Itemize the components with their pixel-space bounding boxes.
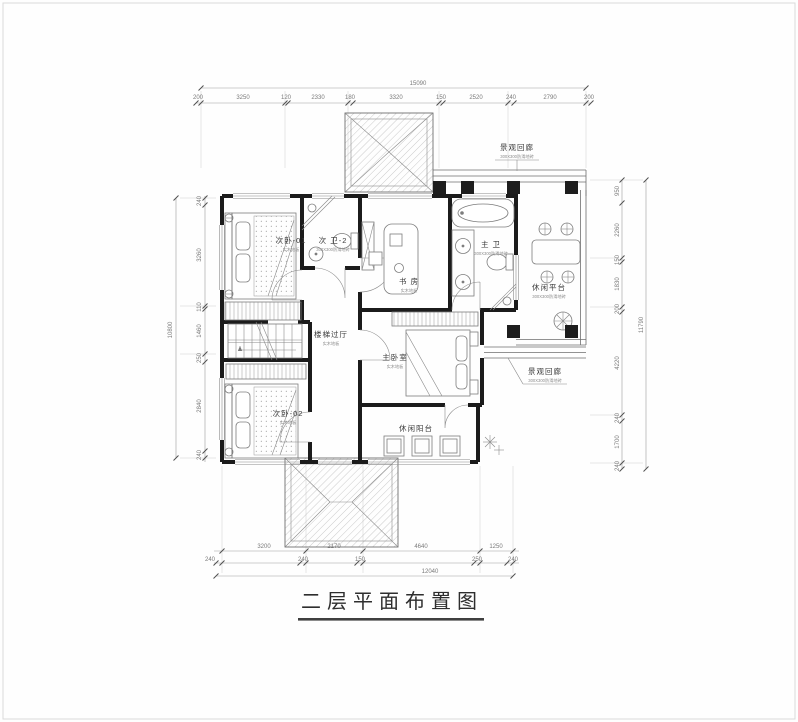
label-corridor-top: 景观回廊 <box>500 142 534 152</box>
dim-left: 10800 240 3260 110 1460 250 2840 240 <box>168 195 208 462</box>
dim: 2790 <box>543 95 557 101</box>
terrace-railing <box>516 190 586 345</box>
floorplan-sheet: 次卧-01 实木地板 次 卫-2 300X300防滑地砖 书 房 实木地板 主 … <box>0 0 798 722</box>
label-bedroom1: 次卧-01 <box>276 235 307 245</box>
sublabel-study: 实木地板 <box>401 287 419 294</box>
dim: 200 <box>615 303 621 314</box>
dim: 240 <box>615 412 621 423</box>
dim: 240 <box>508 557 519 563</box>
label-corridor-right: 景观回廊 <box>528 366 562 376</box>
dim: 110 <box>197 302 203 312</box>
plant-icon <box>483 435 504 455</box>
dim: 250 <box>472 557 483 563</box>
sublabel-masterbath: 300X300防滑地砖 <box>474 250 508 257</box>
dim: 200 <box>584 95 595 101</box>
dim: 2520 <box>469 95 483 101</box>
sublabel-corridor-top: 300X300防滑地砖 <box>500 153 534 160</box>
wardrobe-bedroom1 <box>225 302 301 320</box>
dim: 1830 <box>615 277 621 291</box>
terrace-furniture <box>532 223 580 330</box>
dim: 2330 <box>311 95 325 101</box>
dim: 150 <box>355 557 366 563</box>
dim: 240 <box>506 95 517 101</box>
dim: 1460 <box>197 324 203 338</box>
label-bath2: 次 卫-2 <box>319 235 348 245</box>
sublabel-bedroom1: 实木地板 <box>283 246 301 253</box>
dim: 1700 <box>615 435 621 449</box>
dim: 2840 <box>197 399 203 413</box>
dim: 4220 <box>615 356 621 370</box>
wardrobe-bedroom2 <box>226 364 306 379</box>
dim: 240 <box>615 460 621 471</box>
dim: 200 <box>193 95 204 101</box>
sublabel-terrace: 300X300防滑地砖 <box>532 293 566 300</box>
dim: 2260 <box>615 223 621 237</box>
sublabel-bath2: 300X300防滑地砖 <box>316 246 350 253</box>
label-stairhall: 楼梯过厅 <box>314 329 348 339</box>
title-text: 二层平面布置图 <box>301 590 483 613</box>
dim: 240 <box>298 557 309 563</box>
roof-bottom <box>285 458 398 547</box>
sublabel-masterbedroom: 实木地板 <box>387 363 405 370</box>
dim: 150 <box>615 254 621 265</box>
dim: 3260 <box>197 248 203 262</box>
label-bedroom2: 次卧-02 <box>273 408 304 418</box>
dim: 3250 <box>236 95 250 101</box>
dim-top-overall: 15090 <box>410 81 427 87</box>
title-underline <box>298 618 484 621</box>
label-masterbath: 主 卫 <box>481 239 501 249</box>
dim: 250 <box>197 352 203 363</box>
corridor-right-railing <box>484 347 586 358</box>
label-masterbedroom: 主卧室 <box>382 352 408 362</box>
dim: 240 <box>197 195 203 206</box>
dim: 180 <box>345 95 356 101</box>
balcony-furniture <box>384 435 504 456</box>
label-balcony: 休闲阳台 <box>399 423 433 433</box>
dim-top: 15090 200 3250 120 2330 180 3320 150 252… <box>193 81 595 106</box>
dim: 240 <box>205 557 216 563</box>
label-terrace: 休闲平台 <box>532 282 566 292</box>
dim-right: 950 2260 150 1830 200 4220 240 1700 240 … <box>615 178 649 472</box>
dim-bottom: 3200 2170 4640 1250 240 240 150 250 240 … <box>205 544 519 579</box>
dim: 150 <box>436 95 447 101</box>
dim: 240 <box>197 449 203 460</box>
dim: 2170 <box>327 544 341 550</box>
dim: 3320 <box>389 95 403 101</box>
dim: 4640 <box>414 544 428 550</box>
dim-left-overall: 10800 <box>168 321 174 338</box>
staircase <box>228 322 302 360</box>
dim-bottom-overall: 12040 <box>422 569 439 575</box>
dim: 950 <box>615 185 621 196</box>
dim: 120 <box>281 95 292 101</box>
sublabel-bedroom2: 实木地板 <box>280 419 298 426</box>
label-study: 书 房 <box>399 276 419 286</box>
wardrobe-master <box>392 312 478 326</box>
floorplan-drawing: 次卧-01 实木地板 次 卫-2 300X300防滑地砖 书 房 实木地板 主 … <box>0 0 798 722</box>
sublabel-stairhall: 实木地板 <box>323 340 341 347</box>
drawing-title: 二层平面布置图 <box>298 590 484 621</box>
dim: 3200 <box>257 544 271 550</box>
dim: 1250 <box>489 544 503 550</box>
sublabel-corridor-right: 300X300防滑地砖 <box>528 377 562 384</box>
roof-top <box>345 113 433 192</box>
bedroom1-furniture <box>225 213 301 320</box>
dim-right-overall: 11790 <box>639 316 645 333</box>
